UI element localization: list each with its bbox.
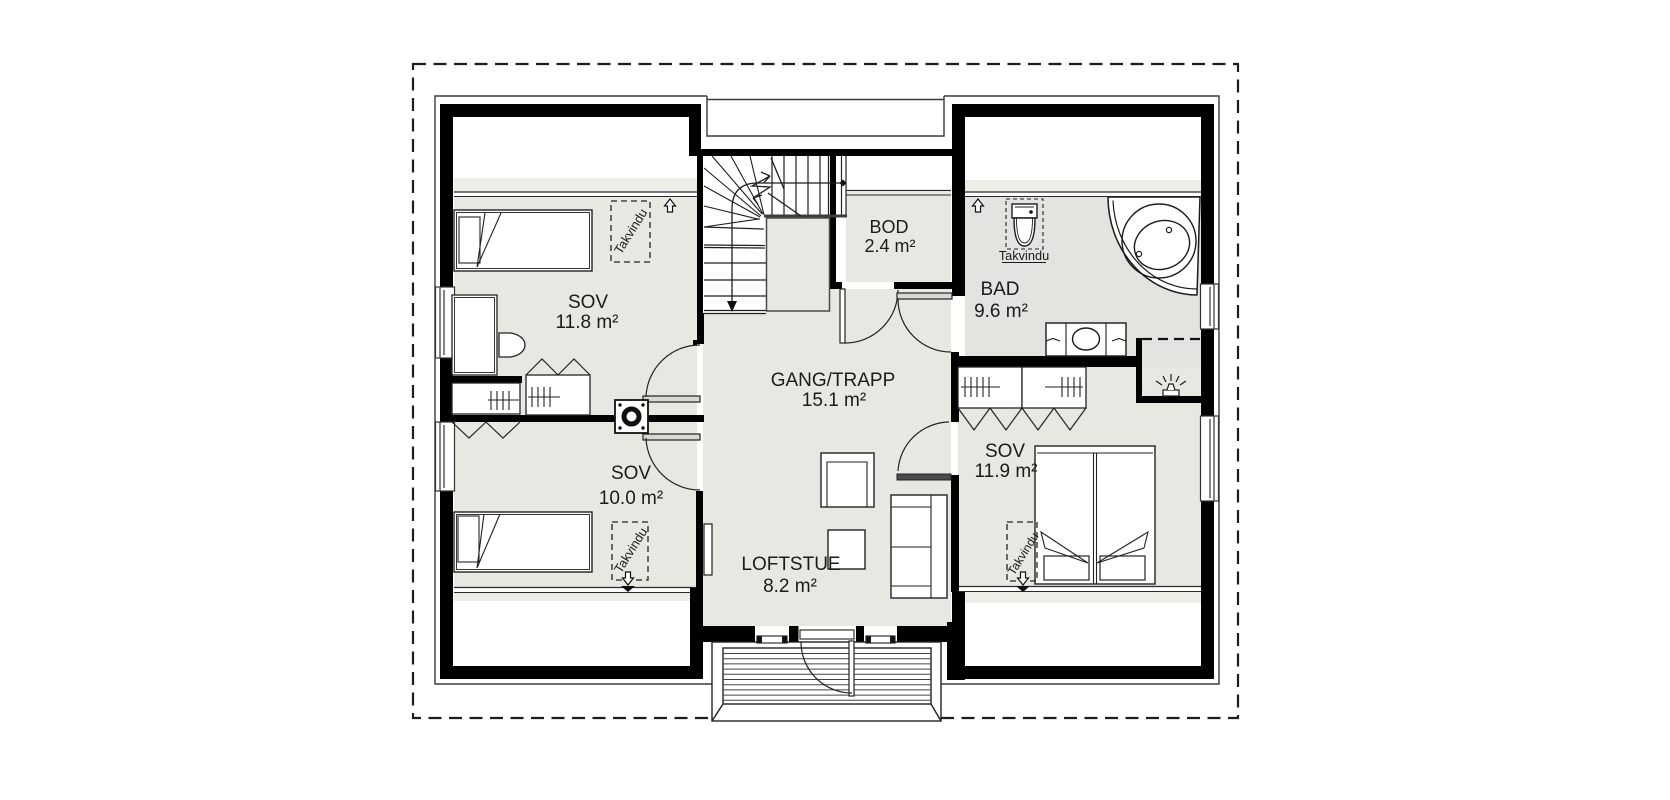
svg-text:LOFTSTUE: LOFTSTUE bbox=[741, 554, 840, 575]
svg-text:BOD: BOD bbox=[869, 217, 908, 237]
svg-text:8.2 m²: 8.2 m² bbox=[763, 576, 817, 597]
svg-text:GANG/TRAPP: GANG/TRAPP bbox=[771, 370, 896, 391]
svg-text:9.6 m²: 9.6 m² bbox=[974, 301, 1028, 322]
svg-text:SOV: SOV bbox=[985, 441, 1025, 462]
svg-text:SOV: SOV bbox=[611, 463, 651, 484]
svg-text:Takvindu: Takvindu bbox=[999, 248, 1050, 263]
svg-text:2.4 m²: 2.4 m² bbox=[864, 236, 915, 256]
svg-text:11.8 m²: 11.8 m² bbox=[555, 312, 618, 333]
svg-text:11.9 m²: 11.9 m² bbox=[974, 461, 1037, 482]
svg-text:15.1 m²: 15.1 m² bbox=[802, 390, 866, 411]
svg-text:BAD: BAD bbox=[980, 279, 1019, 300]
svg-text:10.0 m²: 10.0 m² bbox=[599, 488, 663, 509]
svg-text:SOV: SOV bbox=[568, 292, 608, 313]
